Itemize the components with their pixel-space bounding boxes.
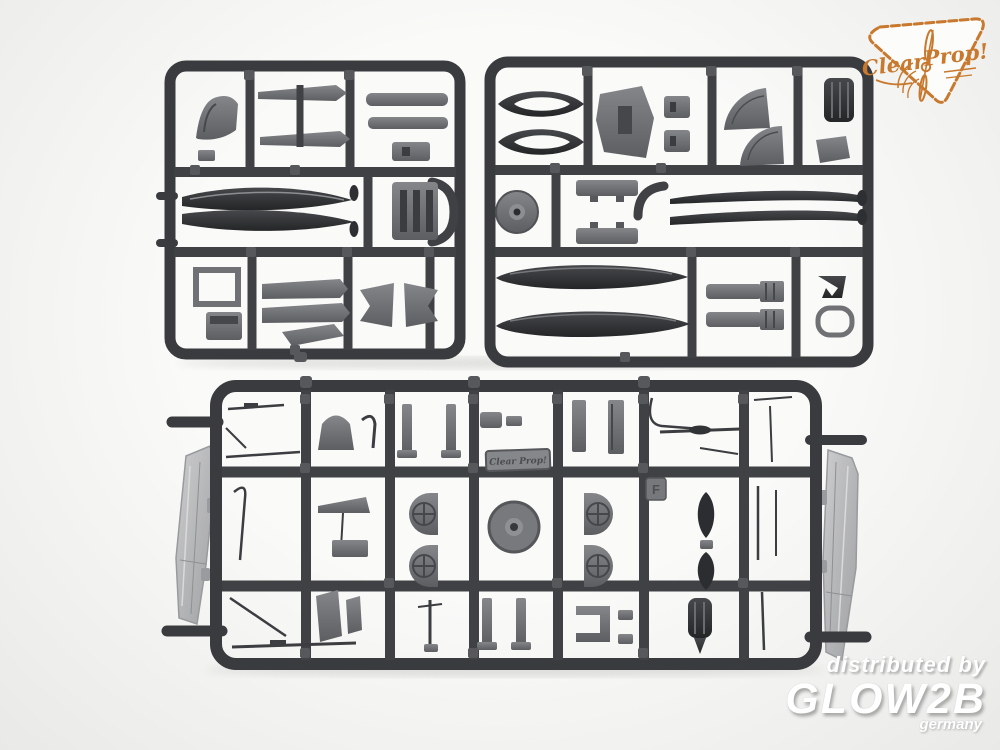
bracket-pair-parts (360, 283, 438, 327)
wing-half-parts (670, 190, 867, 225)
watermark-glow2b-logo: GLOW2B (785, 678, 986, 721)
cone-strut-part (318, 497, 370, 557)
ladder-bracket-part (392, 182, 438, 240)
bottom-sprue: Clear Prop! (167, 376, 866, 664)
frame-outline-part (196, 270, 242, 340)
drop-tank-parts (496, 265, 690, 337)
pitot-antenna-parts (226, 403, 300, 457)
main-wheel-part (489, 502, 539, 552)
gate-letter-tab: F (646, 478, 666, 500)
windshield-part (196, 96, 238, 161)
fuselage-half-parts (182, 185, 359, 237)
barrel-part (816, 78, 854, 163)
strut-parts-row3 (477, 598, 531, 650)
small-cap-parts (480, 412, 522, 428)
right-clear-part (818, 450, 858, 660)
hook-wire-part (234, 488, 245, 560)
sprue-nameplate: Clear Prop! (486, 449, 551, 471)
rod-parts-row2 (758, 486, 776, 560)
thin-antenna-parts (754, 397, 792, 462)
wire-rod-parts (650, 398, 740, 454)
t-antenna-part (418, 600, 442, 652)
spar-parts (576, 180, 638, 244)
exhaust-part (818, 276, 852, 335)
spinner-half-parts (698, 492, 715, 590)
bulkhead-plate-part (596, 86, 690, 158)
watermark-line-distributed-by: distributed by (785, 654, 986, 676)
rod-part-far-right (762, 592, 764, 650)
panel-parts (316, 590, 362, 642)
fan-parts (724, 88, 784, 166)
top-right-sprue (490, 62, 868, 362)
channel-bracket-part (576, 606, 633, 644)
linkage-parts (366, 93, 448, 161)
product-photo: Clear Prop! (0, 0, 1000, 750)
mushroom-plate-part (318, 416, 375, 451)
nameplate-text: Clear Prop! (489, 456, 547, 468)
clear-prop-logo: Clear Prop! (860, 19, 989, 102)
top-left-sprue (160, 66, 460, 362)
cylinder-part (688, 598, 712, 654)
ring-parts (498, 91, 584, 155)
wheel-part (496, 191, 538, 233)
blade-parts (258, 85, 350, 147)
bolt-parts (706, 281, 784, 330)
wheel-cover-parts-right (584, 493, 613, 587)
glow2b-watermark: distributed by GLOW2B germany (785, 654, 986, 732)
flap-strip-parts (262, 279, 350, 346)
wheel-cover-parts-left (409, 493, 438, 587)
sprue-photo-canvas: Clear Prop! (0, 0, 1000, 750)
strut-parts-row1 (397, 404, 461, 458)
gate-letter: F (652, 482, 660, 497)
plate-parts-row1 (572, 400, 624, 454)
